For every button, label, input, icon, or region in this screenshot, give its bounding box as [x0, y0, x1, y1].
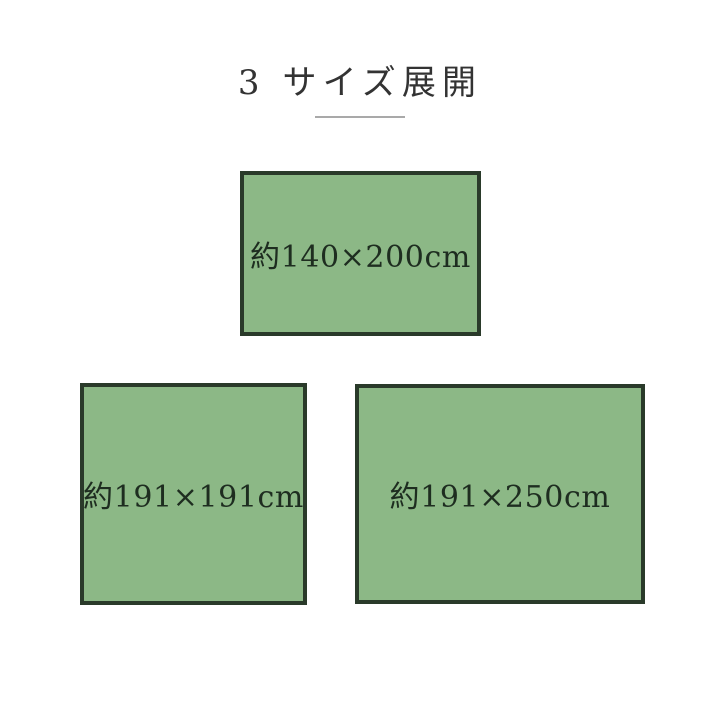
- size-diagram: 3 サイズ展開 約140×200cm 約191×191cm 約191×250cm: [0, 0, 720, 720]
- size-swatch-191x250: 約191×250cm: [355, 384, 645, 604]
- size-label-140x200: 約140×200cm: [250, 232, 471, 276]
- page-title: 3 サイズ展開: [0, 55, 720, 104]
- size-label-191x191: 約191×191cm: [83, 472, 304, 516]
- title-divider: [315, 116, 405, 118]
- size-swatch-140x200: 約140×200cm: [240, 171, 481, 336]
- size-swatch-191x191: 約191×191cm: [80, 383, 307, 605]
- size-label-191x250: 約191×250cm: [390, 472, 611, 516]
